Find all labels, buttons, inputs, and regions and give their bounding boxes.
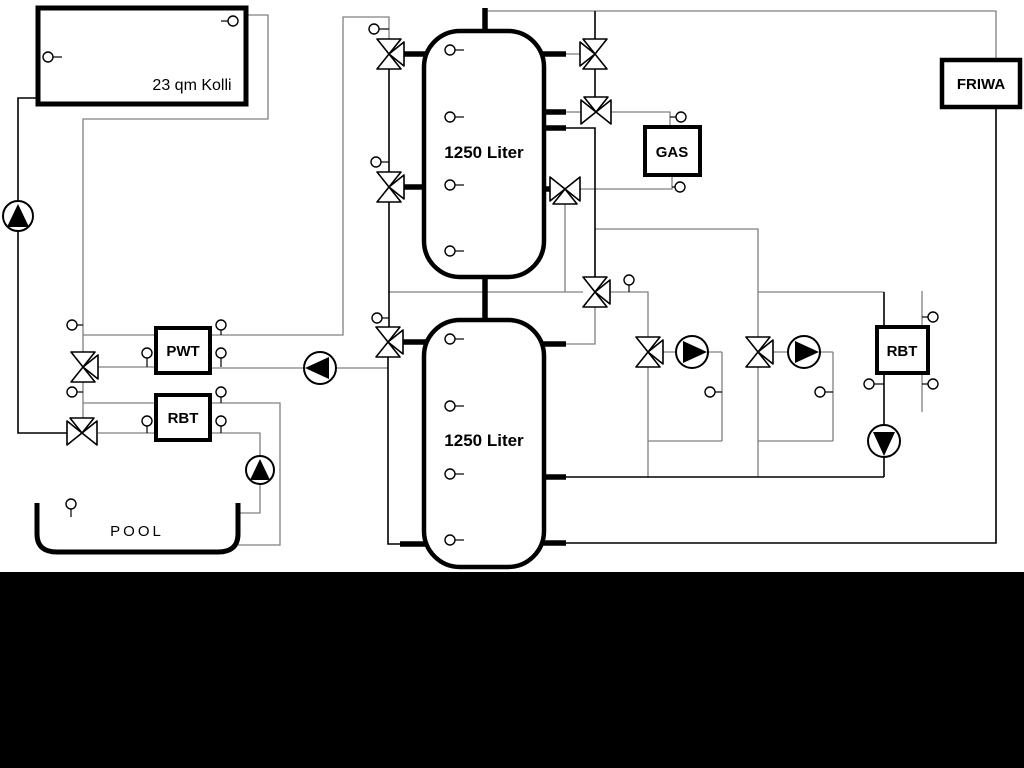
three-way-valve-icon: [377, 172, 404, 202]
sensor-icon: [67, 320, 83, 330]
tank2-bottom-left-pipe: [388, 357, 401, 544]
sensor-icon: [371, 157, 389, 167]
sensor-icon: [67, 387, 83, 397]
circuit1-feed-pipe: [610, 292, 648, 337]
letterbox-band: [0, 572, 1024, 768]
collector-label: 23 qm Kolli: [152, 77, 231, 94]
collector-pump-icon: [3, 201, 33, 231]
sensor-icon: [216, 320, 226, 335]
rbt-right-pump-icon: [868, 425, 900, 457]
hydraulic-schematic: 23 qm Kolli 1250 Liter 1250 Liter PWT RB…: [0, 0, 1024, 768]
three-way-valve-icon: [71, 352, 98, 382]
sensor-icon: [670, 112, 686, 122]
gas-in-pipe: [611, 112, 670, 127]
tank-bottom-label: 1250 Liter: [444, 431, 524, 450]
sensor-icon: [864, 379, 884, 389]
charge-pump-icon: [304, 352, 336, 384]
sensor-icon: [705, 387, 722, 397]
sensor-icon: [369, 24, 389, 34]
gas-return-pipe: [580, 176, 672, 189]
heating-circuit2-pump-icon: [788, 336, 820, 368]
circuit2-loop-pipe: [758, 352, 833, 477]
sensor-icon: [142, 416, 152, 433]
heating-feed-pipe: [595, 229, 758, 337]
three-way-valve-icon: [583, 277, 610, 307]
sensor-icon: [142, 348, 152, 367]
schematic-canvas: 23 qm Kolli 1250 Liter 1250 Liter PWT RB…: [0, 0, 1024, 768]
three-way-valve-icon: [67, 418, 97, 445]
three-way-valve-icon: [746, 337, 773, 367]
sensor-icon: [624, 275, 634, 292]
sensor-icon: [672, 182, 685, 192]
pool-pump-icon: [246, 456, 274, 484]
rbt-right-label: RBT: [887, 343, 918, 360]
three-way-valve-icon: [636, 337, 663, 367]
tank-top-label: 1250 Liter: [444, 143, 524, 162]
circuit1-loop-pipe: [648, 352, 722, 477]
sensor-icon: [922, 312, 938, 322]
three-way-valve-icon: [581, 97, 611, 124]
rbt-left-label: RBT: [168, 410, 199, 427]
sensor-icon: [815, 387, 833, 397]
sensor-icon: [216, 387, 226, 403]
collector-return-pipe: [18, 98, 67, 433]
three-way-valve-icon: [580, 39, 607, 69]
friwa-label: FRIWA: [957, 76, 1005, 93]
pool-label: POOL: [110, 523, 164, 540]
tank2-return-pipe: [566, 307, 595, 344]
sensor-icon: [216, 348, 226, 367]
heating-circuit1-pump-icon: [676, 336, 708, 368]
sensor-icon: [66, 499, 76, 517]
gas-label: GAS: [656, 144, 689, 161]
sensor-icon: [216, 416, 226, 433]
pwt-label: PWT: [166, 343, 199, 360]
three-way-valve-icon: [376, 327, 403, 357]
sensor-icon: [922, 379, 938, 389]
three-way-valve-icon: [550, 177, 580, 204]
three-way-valve-icon: [377, 39, 404, 69]
sensor-icon: [372, 313, 389, 323]
